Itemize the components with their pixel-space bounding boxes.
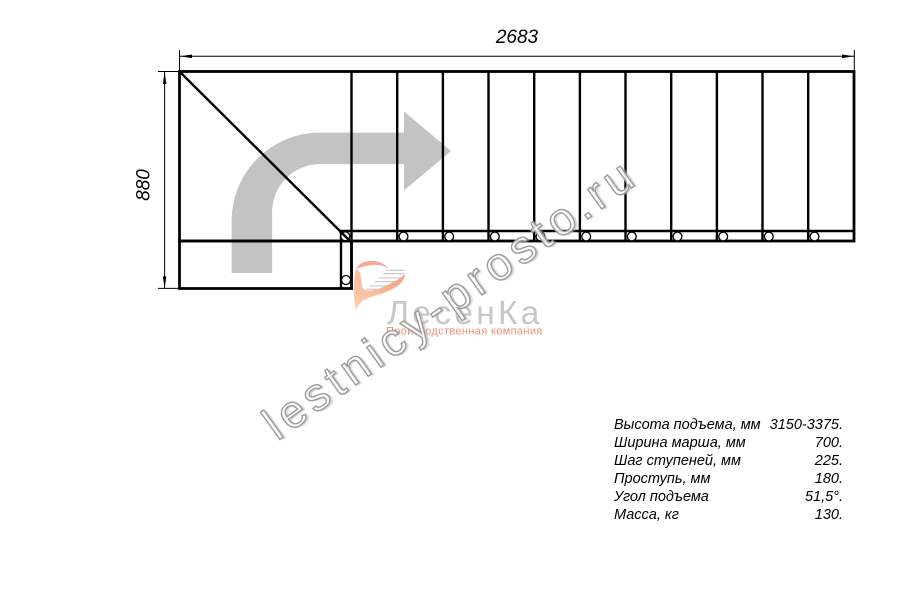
svg-text:880: 880 xyxy=(134,169,155,201)
svg-text:2683: 2683 xyxy=(495,27,539,48)
